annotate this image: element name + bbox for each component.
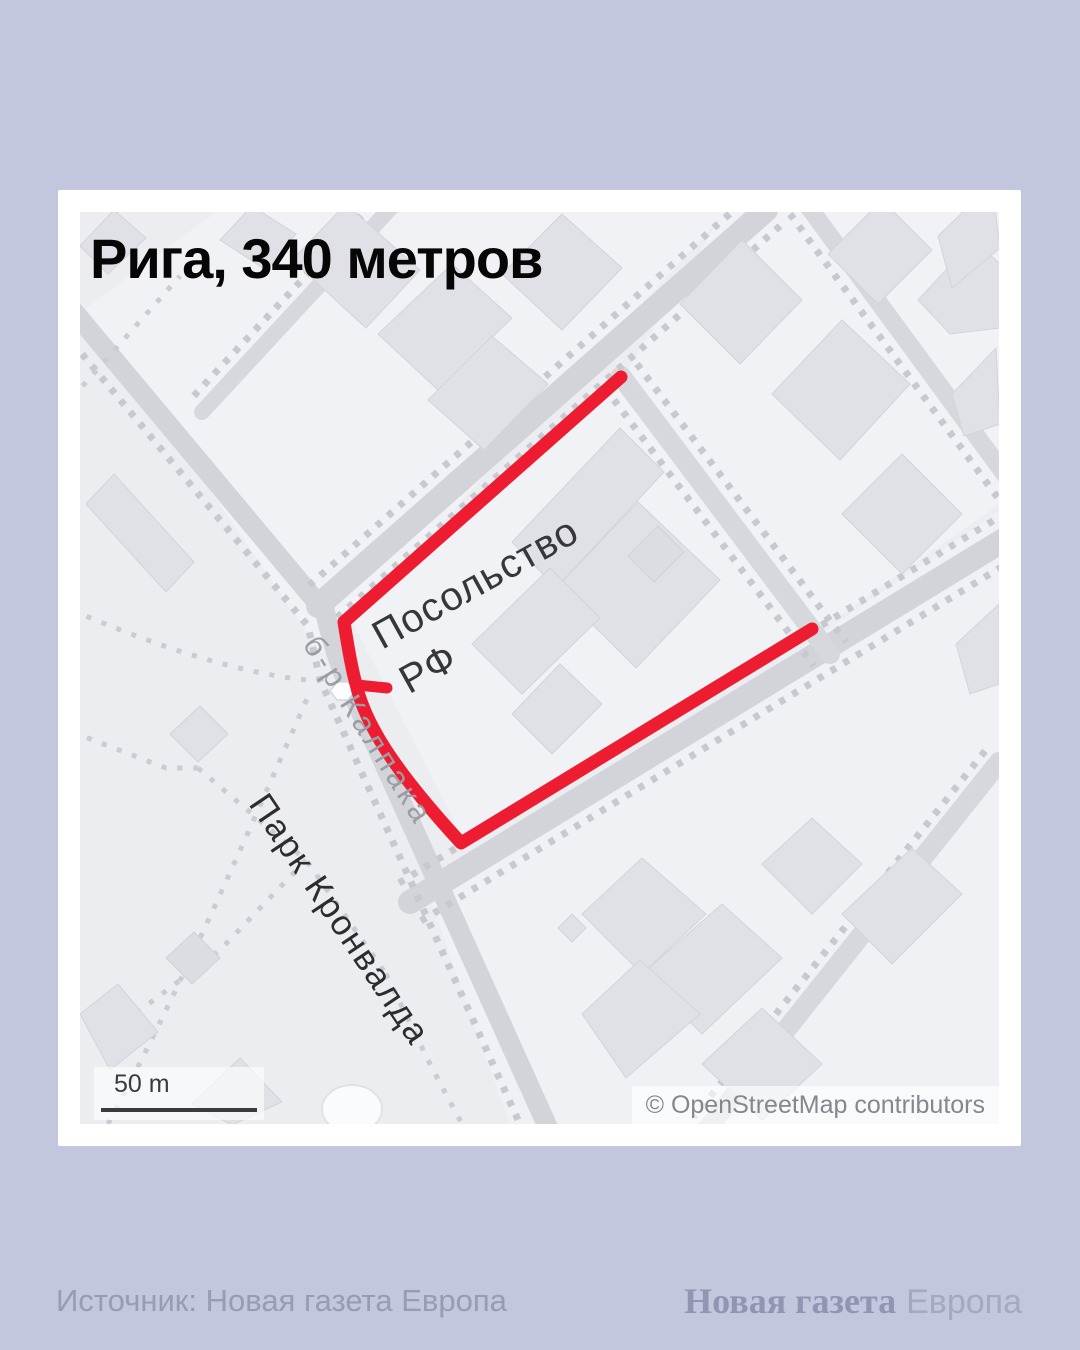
building — [80, 984, 158, 1070]
attribution-text: © OpenStreetMap contributors — [646, 1091, 985, 1120]
scale-label: 50 m — [114, 1070, 170, 1099]
scale-bar: 50 m — [94, 1067, 264, 1120]
map-card: Посольство РФ б-р Калпака Парк Кронвалда… — [58, 190, 1021, 1146]
building — [86, 474, 194, 592]
pond-shape — [322, 1085, 382, 1124]
building — [170, 706, 228, 762]
map-title: Рига, 340 метров — [90, 230, 542, 289]
scale-bar-line — [101, 1108, 257, 1112]
map-canvas: Посольство РФ б-р Калпака Парк Кронвалда — [80, 212, 999, 1124]
map: Посольство РФ б-р Калпака Парк Кронвалда… — [80, 212, 999, 1124]
infographic: Посольство РФ б-р Калпака Парк Кронвалда… — [0, 0, 1080, 1350]
source-text: Источник: Новая газета Европа — [56, 1283, 507, 1319]
brand-logo: Новая газетаЕвропа — [684, 1280, 1022, 1322]
building — [166, 932, 220, 984]
brand-logo-bold: Новая газета — [684, 1281, 896, 1321]
brand-logo-light: Европа — [906, 1283, 1022, 1321]
attribution: © OpenStreetMap contributors — [632, 1086, 999, 1124]
